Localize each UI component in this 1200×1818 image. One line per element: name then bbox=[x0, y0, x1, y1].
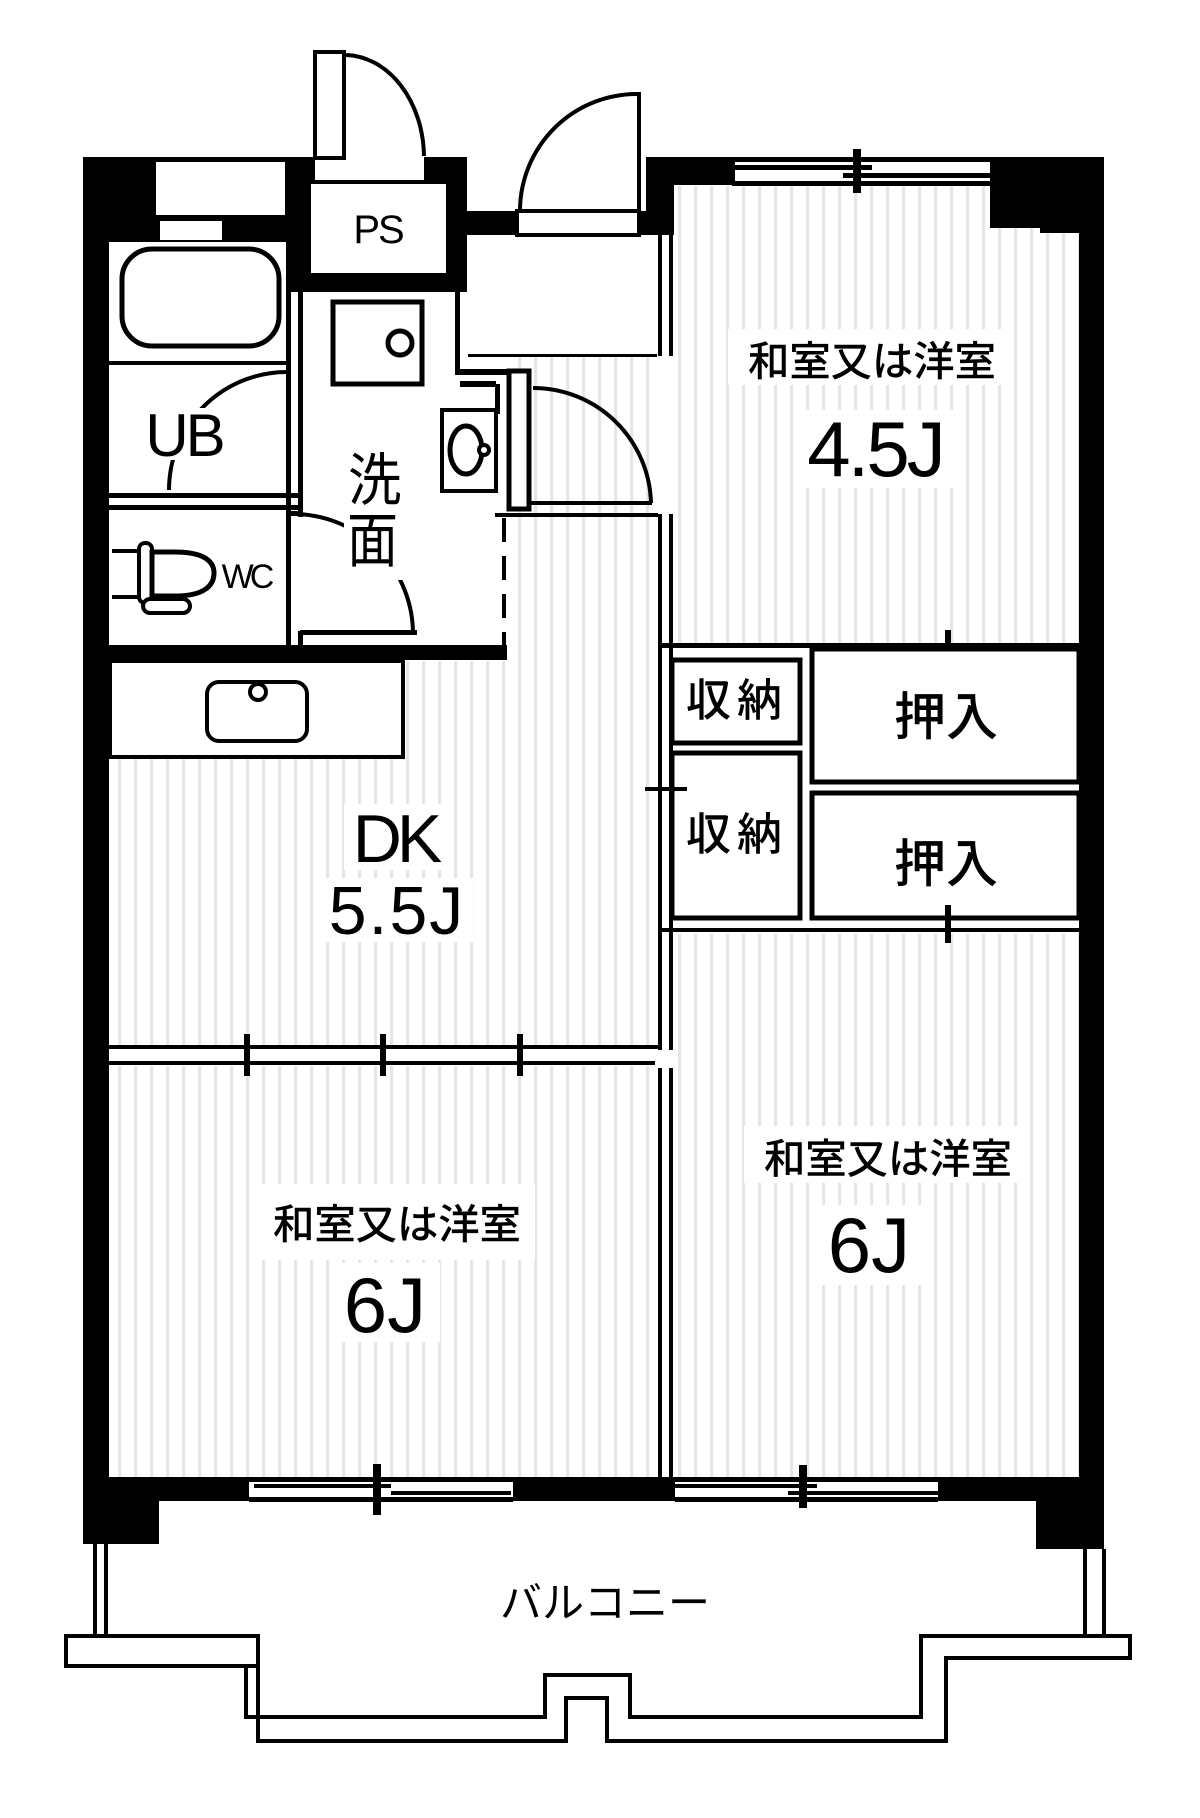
svg-text:4.5J: 4.5J bbox=[807, 405, 942, 493]
svg-text:DK: DK bbox=[353, 801, 442, 877]
svg-text:5.5J: 5.5J bbox=[329, 873, 466, 949]
svg-text:PS: PS bbox=[353, 208, 403, 252]
svg-text:6J: 6J bbox=[344, 1261, 426, 1349]
svg-text:UB: UB bbox=[145, 402, 222, 469]
svg-text:6J: 6J bbox=[828, 1201, 910, 1289]
svg-text:WC: WC bbox=[222, 558, 274, 596]
